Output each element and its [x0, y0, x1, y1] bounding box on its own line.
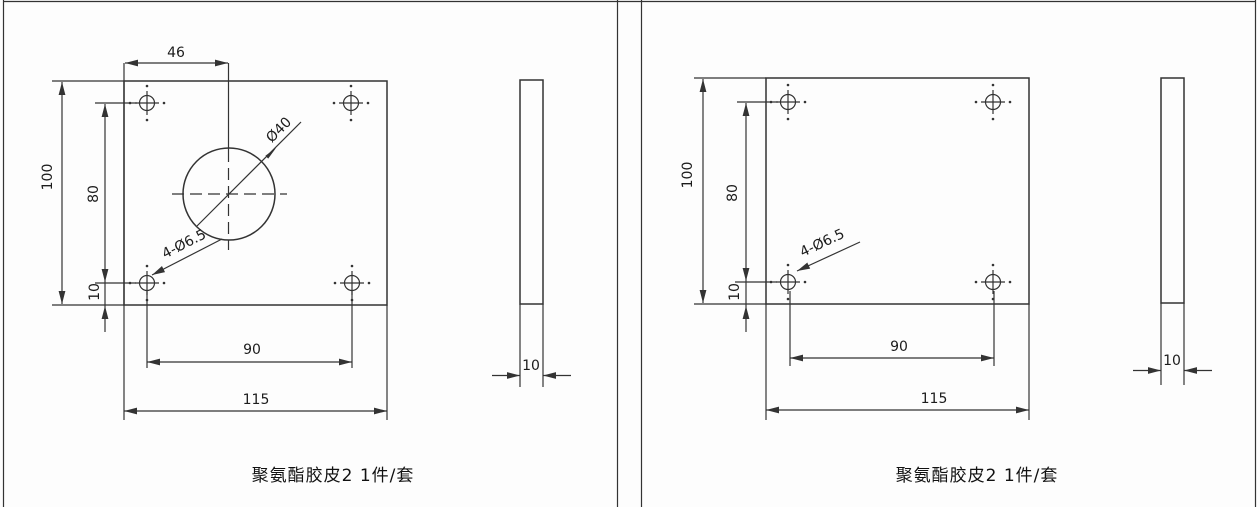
left-side-thickness-text: 10	[522, 358, 540, 374]
left-dimension-80: 80	[86, 103, 137, 283]
right-dimension-100: 100	[680, 78, 766, 304]
right-caption: 聚氨酯胶皮2 1件/套	[896, 466, 1059, 486]
left-corner-hole-top-right	[333, 85, 370, 122]
left-dimension-100: 100	[40, 81, 124, 305]
left-dim-80-text: 80	[86, 185, 102, 203]
left-dim-90-text: 90	[243, 342, 261, 358]
left-caption: 聚氨酯胶皮2 1件/套	[252, 466, 415, 486]
right-dimension-10: 10	[727, 281, 746, 332]
left-corner-holes-label-text: 4-Ø6.5	[160, 227, 209, 263]
left-dim-10-text: 10	[87, 283, 103, 301]
left-dimension-10: 10	[87, 282, 105, 332]
right-corner-holes-label-text: 4-Ø6.5	[798, 226, 848, 260]
right-dim-80-text: 80	[725, 184, 741, 202]
left-dim-100-text: 100	[40, 164, 56, 191]
left-drawing: Ø40 46 100 80 10	[40, 45, 571, 486]
panel-borders	[3, 0, 1256, 507]
left-corner-holes-label: 4-Ø6.5	[152, 227, 222, 275]
left-dim-46-text: 46	[167, 45, 185, 61]
right-dim-10-text: 10	[727, 283, 743, 301]
right-dim-115-text: 115	[921, 391, 948, 407]
left-side-view: 10	[492, 80, 571, 387]
left-dim-115-text: 115	[243, 392, 270, 408]
right-corner-holes-label: 4-Ø6.5	[797, 226, 860, 271]
right-dim-90-text: 90	[890, 339, 908, 355]
drawing-canvas: Ø40 46 100 80 10	[0, 0, 1260, 507]
right-side-thickness-text: 10	[1163, 353, 1181, 369]
left-plate-outline	[124, 81, 387, 305]
left-center-hole-label: Ø40	[263, 114, 295, 146]
right-drawing: 100 80 10 4-Ø6.5 90	[680, 78, 1212, 486]
right-dimension-115: 115	[766, 304, 1029, 420]
right-dimension-90: 90	[790, 291, 994, 366]
left-center-hole: Ø40	[172, 114, 301, 250]
right-dimension-80: 80	[725, 102, 778, 282]
right-corner-hole-bottom-right	[975, 264, 1012, 301]
engineering-drawing-sheet: Ø40 46 100 80 10	[0, 0, 1260, 507]
right-dim-100-text: 100	[680, 162, 696, 189]
right-plate-outline	[766, 78, 1029, 304]
right-corner-hole-top-right	[975, 84, 1012, 121]
right-side-view: 10	[1133, 78, 1212, 385]
left-dimension-90: 90	[147, 291, 352, 368]
